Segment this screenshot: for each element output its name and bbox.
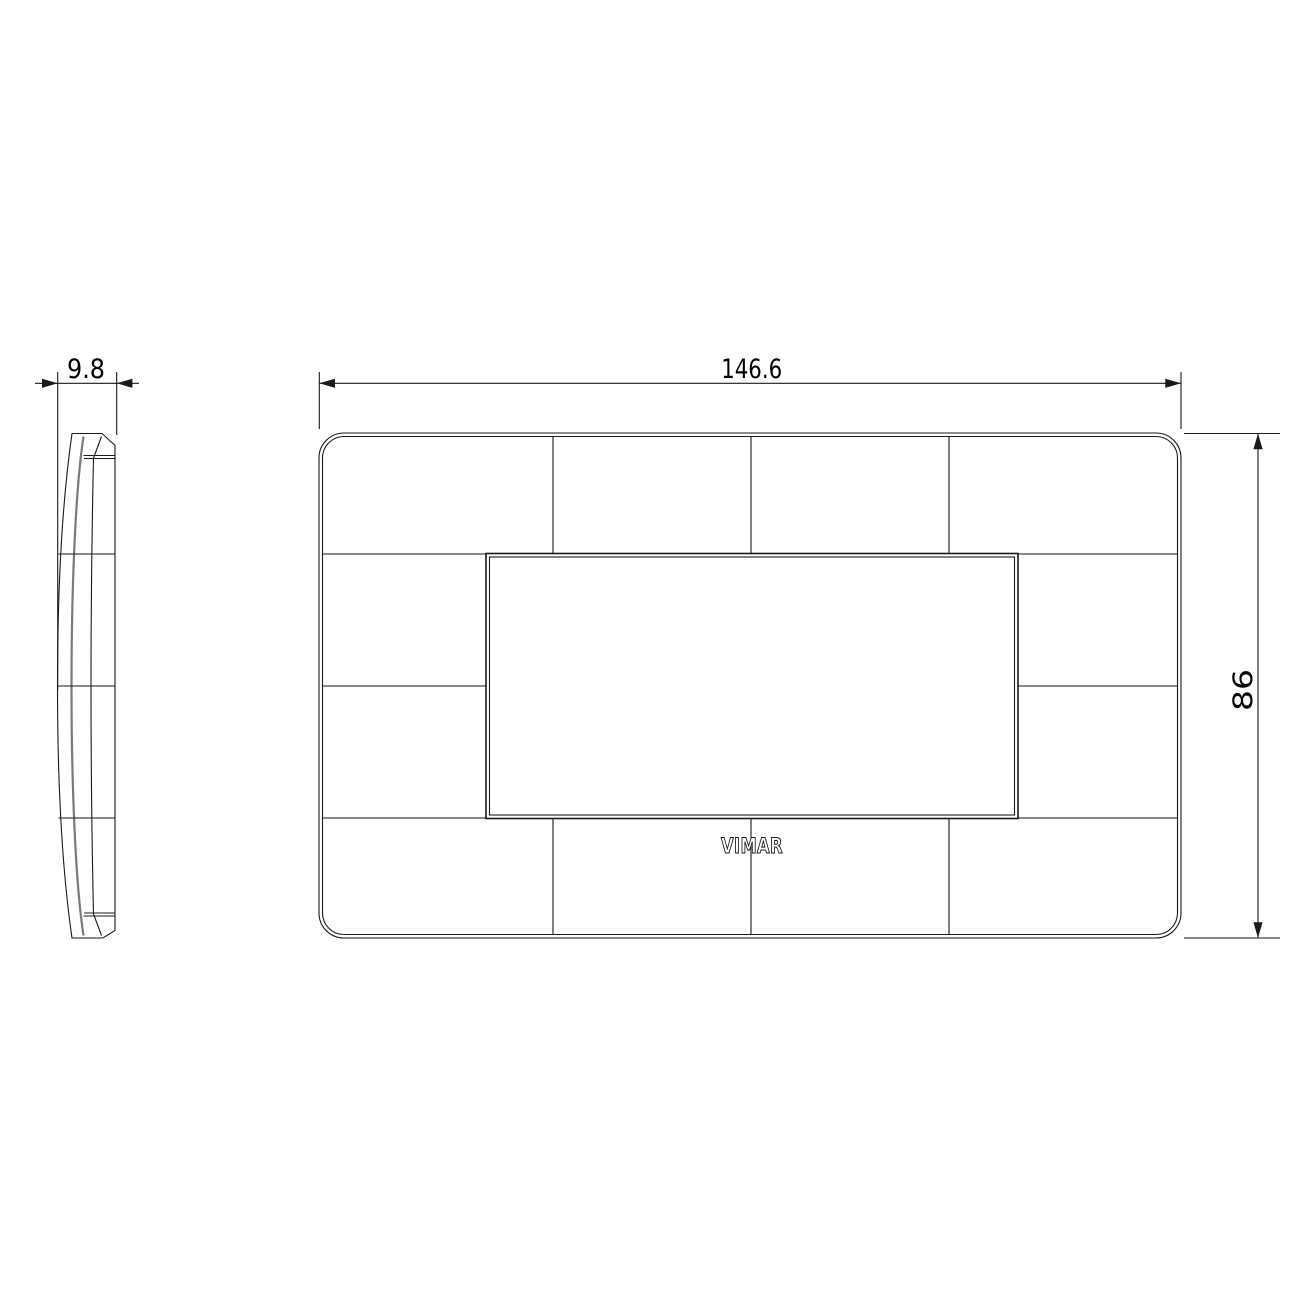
side-section-lines bbox=[58, 554, 116, 818]
logo-group: VIMAR bbox=[721, 834, 783, 858]
depth-arrow-right-icon bbox=[117, 379, 133, 388]
width-arrow-right-icon bbox=[1165, 379, 1181, 388]
side-profile-view bbox=[58, 434, 116, 939]
dimension-width: 146.6 bbox=[319, 354, 1181, 429]
depth-arrow-left-icon bbox=[42, 379, 58, 388]
width-value-label: 146.6 bbox=[721, 354, 782, 385]
central-module-cover bbox=[486, 554, 1018, 819]
technical-drawing-canvas: VIMAR 9.8 146.6 86 bbox=[0, 0, 1300, 1300]
dimension-drawing-svg: VIMAR 9.8 146.6 86 bbox=[0, 0, 1300, 1300]
height-arrow-bottom-icon bbox=[1253, 922, 1262, 938]
dimension-depth: 9.8 bbox=[35, 354, 139, 690]
dimension-height: 86 bbox=[1184, 434, 1280, 939]
height-value-label: 86 bbox=[1228, 669, 1259, 711]
front-view bbox=[319, 433, 1181, 938]
height-arrow-top-icon bbox=[1253, 434, 1262, 450]
width-arrow-left-icon bbox=[319, 379, 335, 388]
depth-value-label: 9.8 bbox=[67, 354, 105, 385]
vimar-logo-text: VIMAR bbox=[721, 834, 783, 858]
